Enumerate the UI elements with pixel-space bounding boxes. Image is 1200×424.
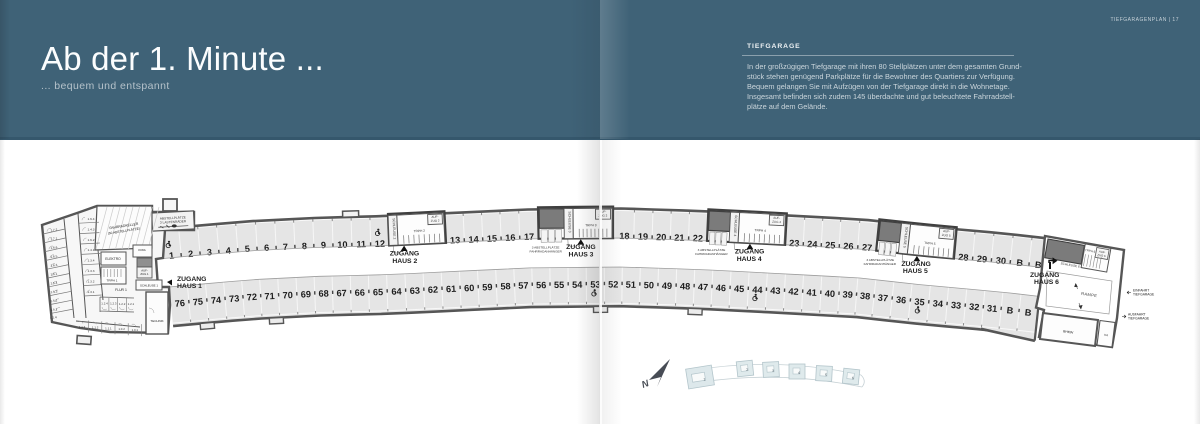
- svg-text:47: 47: [698, 282, 709, 292]
- svg-text:ZUG 5: ZUG 5: [942, 233, 951, 238]
- svg-text:ZUGANG: ZUGANG: [177, 276, 206, 283]
- svg-text:1.2.3: 1.2.3: [110, 302, 117, 306]
- svg-text:34: 34: [932, 298, 944, 309]
- svg-text:ZUG 1: ZUG 1: [140, 272, 149, 276]
- svg-text:55: 55: [554, 280, 564, 290]
- svg-text:65: 65: [373, 287, 384, 297]
- svg-text:SCHLEUSE 3: SCHLEUSE 3: [567, 211, 571, 232]
- svg-text:31: 31: [987, 303, 998, 314]
- svg-text:49: 49: [662, 281, 673, 291]
- svg-text:71: 71: [264, 291, 275, 302]
- svg-text:19: 19: [638, 232, 649, 242]
- svg-text:1.1.3: 1.1.3: [79, 325, 86, 329]
- svg-text:1: 1: [169, 250, 175, 260]
- svg-text:28: 28: [958, 252, 969, 263]
- svg-text:FAHRRADANHÄNGER: FAHRRADANHÄNGER: [864, 262, 897, 266]
- svg-text:56: 56: [536, 280, 546, 290]
- svg-text:ELEKTRO: ELEKTRO: [105, 257, 121, 261]
- svg-text:76: 76: [174, 298, 185, 309]
- svg-text:1.2.1: 1.2.1: [128, 302, 135, 306]
- svg-text:25: 25: [825, 240, 836, 251]
- svg-text:40: 40: [824, 289, 835, 300]
- svg-text:12: 12: [375, 239, 386, 249]
- svg-text:KIWA: KIWA: [138, 248, 145, 252]
- svg-text:1.1.1: 1.1.1: [105, 326, 112, 330]
- svg-text:9: 9: [321, 240, 326, 250]
- svg-text:21: 21: [674, 233, 685, 243]
- svg-text:TIEFGARAGE: TIEFGARAGE: [1133, 293, 1155, 297]
- svg-text:1.3.3: 1.3.3: [88, 269, 95, 273]
- svg-text:67: 67: [336, 288, 346, 298]
- svg-text:39: 39: [842, 289, 853, 300]
- svg-text:FAHRRADANHÄNGER: FAHRRADANHÄNGER: [530, 250, 563, 254]
- svg-text:SCHLEUSE 2: SCHLEUSE 2: [392, 218, 397, 239]
- svg-text:ZUG 4: ZUG 4: [772, 220, 781, 224]
- svg-text:38: 38: [860, 291, 871, 302]
- svg-text:29: 29: [976, 254, 987, 265]
- svg-text:22: 22: [693, 233, 704, 243]
- svg-text:SCHLEUSE 1: SCHLEUSE 1: [140, 284, 158, 288]
- svg-text:20: 20: [656, 232, 667, 242]
- svg-text:37: 37: [877, 292, 888, 303]
- svg-text:1.7.1: 1.7.1: [50, 236, 58, 241]
- svg-text:43: 43: [770, 286, 781, 297]
- svg-text:HAUS 4: HAUS 4: [737, 256, 762, 263]
- svg-text:1.0.2: 1.0.2: [118, 327, 125, 331]
- svg-text:TRPH 2: TRPH 2: [414, 229, 426, 234]
- svg-text:41: 41: [806, 287, 817, 298]
- svg-text:70: 70: [282, 290, 293, 301]
- svg-text:B: B: [1016, 258, 1024, 269]
- svg-text:44: 44: [752, 285, 764, 296]
- svg-text:64: 64: [391, 286, 403, 296]
- svg-text:TRPH 4: TRPH 4: [754, 228, 766, 233]
- svg-text:TECHNIK: TECHNIK: [150, 319, 163, 323]
- svg-text:1.2.2: 1.2.2: [119, 302, 126, 306]
- svg-text:57: 57: [518, 280, 529, 290]
- svg-text:5: 5: [825, 373, 827, 377]
- svg-text:ZUGANG: ZUGANG: [901, 261, 930, 268]
- svg-text:1.5.4: 1.5.4: [50, 281, 58, 286]
- svg-text:6: 6: [264, 243, 270, 253]
- svg-text:14: 14: [468, 234, 480, 244]
- svg-text:13: 13: [450, 235, 461, 245]
- svg-text:75: 75: [192, 296, 203, 307]
- svg-text:8: 8: [302, 241, 308, 251]
- svg-text:35: 35: [914, 297, 925, 308]
- svg-text:1.6.4: 1.6.4: [88, 217, 95, 221]
- svg-text:ZUG 2: ZUG 2: [431, 219, 440, 223]
- svg-text:10: 10: [337, 240, 347, 250]
- svg-text:46: 46: [716, 283, 727, 294]
- svg-text:HAUS 1: HAUS 1: [177, 283, 202, 290]
- svg-text:74: 74: [211, 295, 223, 306]
- svg-text:ZUGANG: ZUGANG: [390, 251, 419, 258]
- svg-text:1.5.1: 1.5.1: [50, 307, 58, 312]
- svg-text:62: 62: [428, 285, 439, 295]
- svg-text:45: 45: [734, 284, 745, 295]
- svg-text:TIEFGARAGE: TIEFGARAGE: [1128, 317, 1150, 321]
- svg-text:15: 15: [487, 233, 498, 243]
- svg-text:HAUS 6: HAUS 6: [1034, 279, 1059, 286]
- svg-text:1.4.1: 1.4.1: [88, 248, 95, 252]
- svg-text:73: 73: [229, 293, 240, 304]
- svg-text:58: 58: [500, 281, 511, 291]
- svg-text:24: 24: [807, 239, 819, 250]
- svg-text:69: 69: [300, 289, 311, 299]
- svg-text:30: 30: [995, 255, 1006, 266]
- svg-text:61: 61: [446, 284, 457, 294]
- svg-text:26: 26: [843, 241, 854, 252]
- svg-text:63: 63: [409, 285, 420, 295]
- svg-text:HA: HA: [1104, 333, 1109, 338]
- svg-text:ZUGANG: ZUGANG: [735, 249, 764, 256]
- svg-text:1.3.4: 1.3.4: [88, 259, 95, 263]
- svg-text:23: 23: [789, 238, 800, 249]
- svg-text:3: 3: [206, 247, 212, 257]
- svg-text:2: 2: [188, 249, 194, 259]
- svg-text:1.2.4: 1.2.4: [101, 302, 108, 306]
- svg-text:4: 4: [798, 371, 800, 375]
- svg-text:27: 27: [862, 242, 873, 253]
- svg-text:1.6.2: 1.6.2: [88, 238, 95, 242]
- svg-text:7: 7: [283, 242, 289, 252]
- svg-text:48: 48: [680, 281, 691, 291]
- svg-text:1.3.2: 1.3.2: [88, 279, 95, 283]
- svg-text:1.1.2: 1.1.2: [92, 326, 99, 330]
- svg-text:1.5.2: 1.5.2: [50, 298, 58, 303]
- svg-text:51: 51: [626, 280, 636, 290]
- svg-text:1.4.3: 1.4.3: [88, 227, 95, 231]
- svg-text:17: 17: [524, 232, 535, 242]
- svg-text:32: 32: [969, 302, 980, 313]
- svg-text:11: 11: [356, 239, 366, 249]
- svg-text:1.0.1: 1.0.1: [132, 328, 139, 332]
- svg-text:50: 50: [644, 280, 655, 290]
- svg-text:33: 33: [951, 300, 962, 311]
- svg-text:FLUR 1: FLUR 1: [115, 288, 127, 292]
- svg-text:ZUGANG: ZUGANG: [1030, 272, 1059, 279]
- svg-text:3: 3: [772, 369, 774, 373]
- svg-text:42: 42: [788, 286, 799, 297]
- svg-text:HAUS 5: HAUS 5: [903, 268, 928, 275]
- svg-text:59: 59: [482, 282, 493, 292]
- svg-text:36: 36: [895, 294, 906, 305]
- svg-text:FAHRRADANHÄNGER: FAHRRADANHÄNGER: [695, 252, 728, 256]
- svg-text:1.6.5: 1.6.5: [50, 254, 58, 259]
- svg-text:68: 68: [318, 288, 329, 298]
- svg-text:16: 16: [505, 233, 516, 243]
- svg-text:66: 66: [355, 288, 365, 298]
- svg-text:5: 5: [244, 244, 250, 254]
- svg-text:HAUS 2: HAUS 2: [392, 258, 417, 265]
- svg-text:60: 60: [464, 283, 475, 293]
- svg-text:TRPH 1: TRPH 1: [106, 279, 117, 283]
- svg-text:72: 72: [246, 292, 257, 303]
